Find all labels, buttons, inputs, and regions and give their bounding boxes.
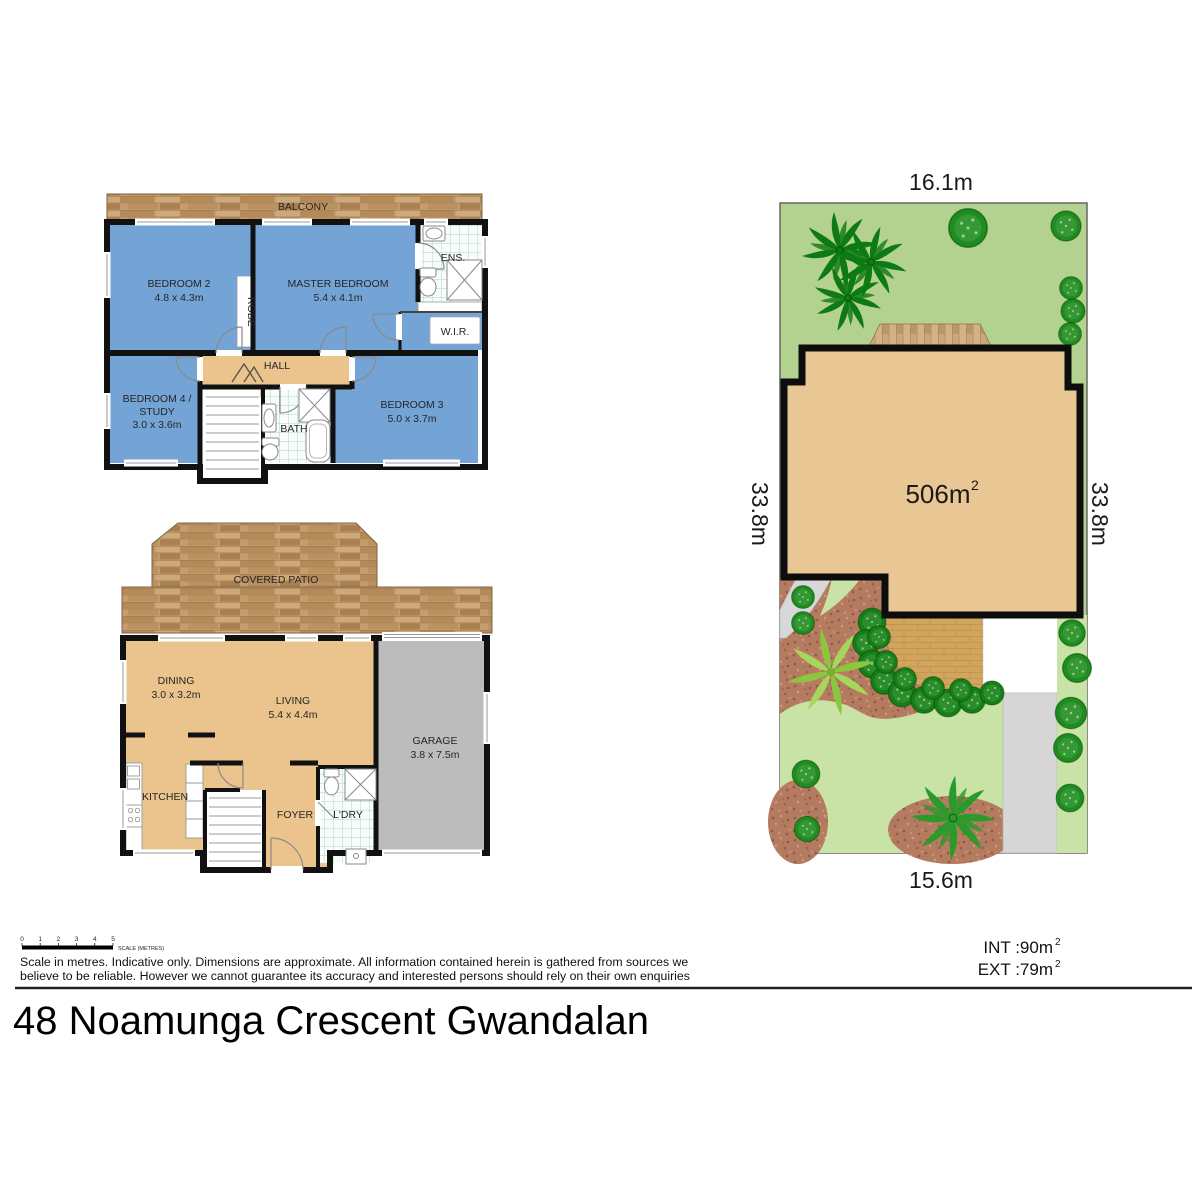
living-dims: 5.4 x 4.4m	[268, 709, 317, 721]
side-bush	[1061, 299, 1085, 323]
ground-floor-plan: COVERED PATIO DINING 3.0 x 3.2m LIVING 5…	[120, 523, 493, 874]
front-bush	[1051, 211, 1081, 241]
footer: 0 1 2 3 4 5 SCALE (METRES) Scale in metr…	[13, 936, 1192, 1043]
external-area: EXT :79m	[978, 960, 1053, 979]
master-bedroom-dims: 5.4 x 4.1m	[313, 292, 362, 304]
internal-area-superscript: 2	[1055, 937, 1061, 948]
scale-bar-label: SCALE (METRES)	[118, 946, 164, 952]
disclaimer-line1: Scale in metres. Indicative only. Dimens…	[20, 955, 688, 969]
bedroom3-label: BEDROOM 3	[380, 399, 443, 411]
bath-label: BATH	[280, 423, 307, 435]
garage-label: GARAGE	[413, 735, 458, 747]
bedroom2-label: BEDROOM 2	[147, 278, 210, 290]
site-dim-bottom: 15.6m	[909, 867, 973, 893]
disclaimer-line2: believe to be reliable. However we canno…	[20, 969, 690, 983]
covered-patio-strip	[122, 587, 492, 633]
side-bush	[1060, 277, 1083, 300]
site-dim-left: 33.8m	[747, 482, 773, 546]
bedroom3-dims: 5.0 x 3.7m	[387, 413, 436, 425]
scale-tick: 3	[75, 936, 79, 943]
master-bedroom-label: MASTER BEDROOM	[288, 278, 389, 290]
scale-tick: 2	[57, 936, 61, 943]
living-label: LIVING	[276, 695, 310, 707]
front-bush	[949, 209, 987, 247]
scale-bar: 0 1 2 3 4 5 SCALE (METRES)	[20, 936, 164, 952]
rear-garden	[768, 577, 1091, 868]
ensuite-label: ENS.	[441, 252, 466, 264]
scale-tick: 0	[20, 936, 24, 943]
driveway	[1003, 693, 1057, 853]
hall-label: HALL	[264, 360, 290, 372]
covered-patio-label: COVERED PATIO	[234, 574, 319, 586]
land-area-superscript: 2	[971, 477, 979, 493]
scale-tick: 1	[38, 936, 42, 943]
stairs-upper-landing	[203, 463, 263, 479]
site-plan: 16.1m 15.6m 33.8m 33.8m 506m 2	[747, 169, 1113, 893]
dining-label: DINING	[158, 675, 195, 687]
robe-label: ROBE	[245, 297, 257, 327]
scale-tick: 5	[111, 936, 115, 943]
site-dim-top: 16.1m	[909, 169, 973, 195]
laundry-label: L'DRY	[333, 809, 363, 821]
room-garage	[377, 641, 485, 853]
land-area-label: 506m	[905, 479, 970, 509]
internal-area: INT :90m	[983, 938, 1053, 957]
wir-label: W.I.R.	[441, 326, 470, 338]
ensuite-toilet	[420, 268, 436, 277]
kitchen-label: KITCHEN	[142, 791, 188, 803]
dining-dims: 3.0 x 3.2m	[151, 689, 200, 701]
balcony-label: BALCONY	[278, 201, 328, 213]
laundry-toilet	[324, 769, 339, 777]
floorplan-canvas: BALCONY BEDROOM 2 4.8 x 4.3m MASTER BEDR…	[0, 0, 1200, 1200]
rear-deck	[868, 324, 992, 348]
scale-tick: 4	[93, 936, 97, 943]
floorplan-page: BALCONY BEDROOM 2 4.8 x 4.3m MASTER BEDR…	[0, 0, 1200, 1200]
bedroom4-dims: 3.0 x 3.6m	[132, 419, 181, 431]
foyer-label: FOYER	[277, 809, 314, 821]
stairs-ground	[207, 790, 263, 870]
external-area-superscript: 2	[1055, 959, 1061, 970]
bedroom4-label: BEDROOM 4 /	[123, 393, 192, 405]
property-address: 48 Noamunga Crescent Gwandalan	[13, 999, 649, 1043]
garage-dims: 3.8 x 7.5m	[410, 749, 459, 761]
site-dim-right: 33.8m	[1087, 482, 1113, 546]
area-summary: INT :90m 2 EXT :79m 2	[978, 937, 1061, 979]
side-bush	[1059, 323, 1082, 346]
upper-floor-plan: BALCONY BEDROOM 2 4.8 x 4.3m MASTER BEDR…	[104, 194, 489, 481]
bedroom4-label2: STUDY	[139, 406, 175, 418]
bedroom2-dims: 4.8 x 4.3m	[154, 292, 203, 304]
laundry-sink	[346, 849, 366, 864]
ensuite-shelf	[418, 302, 482, 312]
